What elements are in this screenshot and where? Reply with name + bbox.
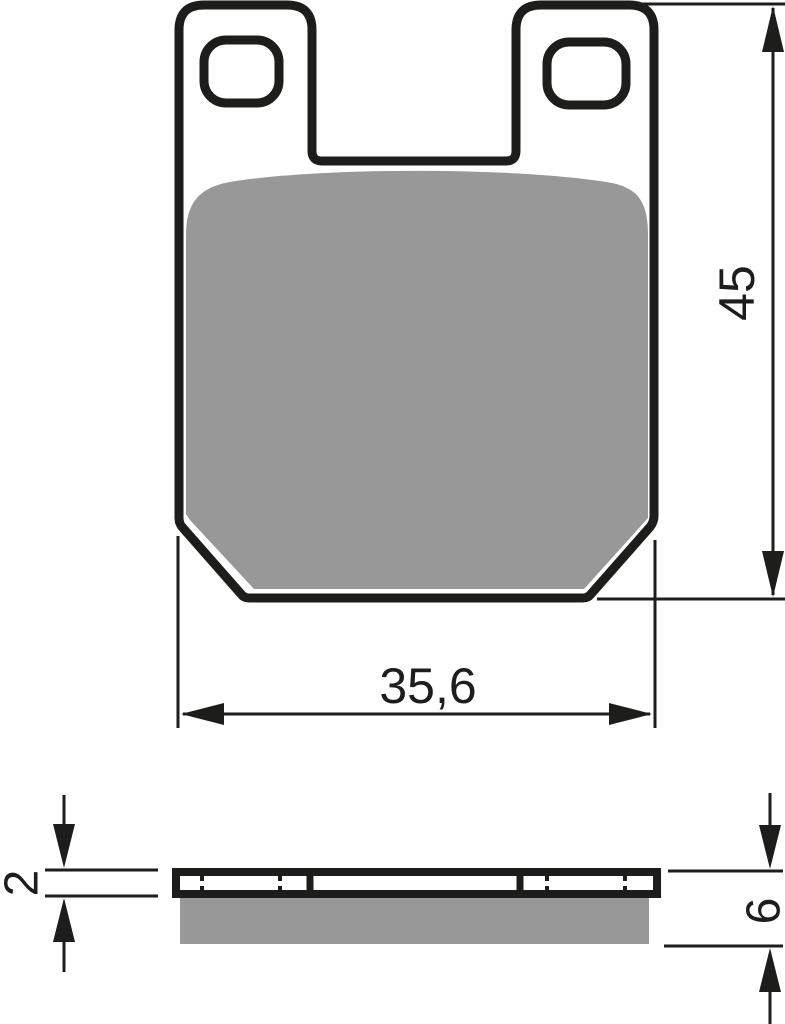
front-view bbox=[179, 5, 654, 598]
arrowhead-up-icon bbox=[53, 898, 75, 942]
arrowhead-up-icon bbox=[762, 6, 784, 52]
dimension-pad-thickness: 6 bbox=[664, 793, 785, 1024]
friction-material-side bbox=[180, 897, 649, 944]
diagram-canvas: 45 35,6 bbox=[0, 0, 785, 1024]
arrowhead-down-icon bbox=[53, 824, 75, 868]
dimension-backplate-thickness: 2 bbox=[0, 795, 158, 972]
width-dimension-label: 35,6 bbox=[379, 658, 476, 714]
pad-thickness-label: 6 bbox=[738, 898, 785, 925]
arrowhead-down-icon bbox=[762, 551, 784, 597]
backplate-side bbox=[176, 872, 657, 894]
backplate-thickness-label: 2 bbox=[0, 870, 49, 897]
friction-material-front bbox=[186, 171, 648, 589]
mounting-hole-left bbox=[204, 40, 279, 103]
arrowhead-up-icon bbox=[759, 948, 781, 992]
height-dimension-label: 45 bbox=[709, 265, 765, 321]
arrowhead-left-icon bbox=[181, 703, 224, 725]
arrowhead-right-icon bbox=[609, 703, 652, 725]
side-view bbox=[176, 871, 657, 944]
arrowhead-down-icon bbox=[759, 825, 781, 869]
brake-pad-technical-drawing: 45 35,6 bbox=[0, 0, 785, 1024]
mounting-hole-right bbox=[547, 42, 626, 105]
